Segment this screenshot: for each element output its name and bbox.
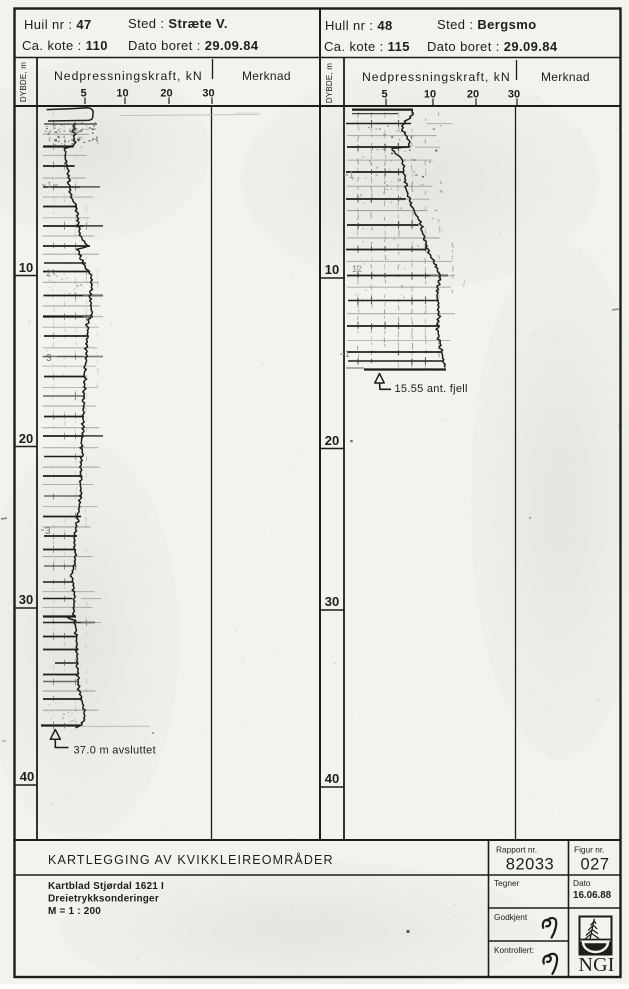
svg-text:30: 30 [508, 89, 520, 101]
svg-text:Dreietrykksonderinger: Dreietrykksonderinger [48, 894, 159, 905]
svg-text:Dato boret : 29.09.84: Dato boret : 29.09.84 [427, 39, 558, 54]
svg-text:10: 10 [325, 262, 339, 277]
svg-text:Nedpressningskraft, kN: Nedpressningskraft, kN [362, 70, 511, 84]
svg-text:10: 10 [19, 260, 33, 275]
svg-text:1: 1 [345, 349, 350, 359]
svg-text:3: 3 [45, 526, 51, 537]
svg-text:Sted : Stræte V.: Sted : Stræte V. [128, 16, 228, 31]
svg-text:10: 10 [424, 89, 436, 101]
svg-text:37.0 m avsluttet: 37.0 m avsluttet [74, 745, 156, 757]
svg-text:2: 2 [46, 268, 51, 278]
svg-text:12: 12 [352, 264, 362, 274]
svg-text:Huil nr : 47: Huil nr : 47 [24, 17, 92, 32]
svg-text:Dato boret : 29.09.84: Dato boret : 29.09.84 [128, 38, 259, 53]
svg-text:DYBDE, m: DYBDE, m [325, 63, 334, 103]
svg-text:Kartblad Stjørdal 1621 I: Kartblad Stjørdal 1621 I [48, 881, 164, 892]
svg-text:Rapport nr.: Rapport nr. [496, 845, 537, 855]
svg-text:Merknad: Merknad [541, 70, 590, 84]
svg-text:Ca. kote : 110: Ca. kote : 110 [22, 38, 108, 53]
svg-text:1: 1 [47, 180, 52, 190]
svg-text:40: 40 [325, 771, 339, 786]
svg-text:20: 20 [467, 89, 479, 101]
svg-text:Merknad: Merknad [242, 69, 291, 83]
svg-text:Sted : Bergsmo: Sted : Bergsmo [437, 17, 537, 32]
svg-text:30: 30 [202, 88, 214, 100]
svg-text:Kontrollert:: Kontrollert: [494, 945, 534, 955]
svg-text:Nedpressningskraft, kN: Nedpressningskraft, kN [54, 69, 203, 83]
svg-text:3: 3 [46, 353, 52, 364]
svg-text:20: 20 [325, 433, 339, 448]
svg-text:5: 5 [80, 88, 86, 100]
svg-text:20: 20 [160, 88, 172, 100]
svg-text:1: 1 [349, 170, 354, 180]
svg-text:KARTLEGGING AV KVIKKLEIREOMRÅD: KARTLEGGING AV KVIKKLEIREOMRÅDER [48, 852, 334, 867]
svg-text:5: 5 [381, 89, 387, 101]
svg-text:M = 1 : 200: M = 1 : 200 [48, 906, 101, 917]
svg-text:Ca. kote : 115: Ca. kote : 115 [324, 39, 410, 54]
svg-text:Hull nr : 48: Hull nr : 48 [325, 18, 393, 33]
svg-text:DYBDE, m: DYBDE, m [19, 62, 28, 102]
svg-text:40: 40 [20, 769, 34, 784]
svg-text:Figur nr.: Figur nr. [574, 845, 604, 855]
svg-text:20: 20 [19, 431, 33, 446]
svg-text:82033: 82033 [506, 856, 554, 874]
svg-text:Tegner: Tegner [494, 878, 520, 888]
svg-text:30: 30 [325, 594, 339, 609]
svg-text:Godkjent: Godkjent [494, 912, 528, 922]
svg-text:NGI: NGI [579, 954, 615, 976]
svg-text:10: 10 [116, 88, 128, 100]
svg-text:027: 027 [580, 856, 609, 874]
svg-text:30: 30 [19, 592, 33, 607]
svg-text:Dato: Dato [573, 878, 591, 888]
svg-text:16.06.88: 16.06.88 [573, 890, 612, 901]
svg-text:15.55 ant. fjell: 15.55 ant. fjell [395, 383, 468, 395]
